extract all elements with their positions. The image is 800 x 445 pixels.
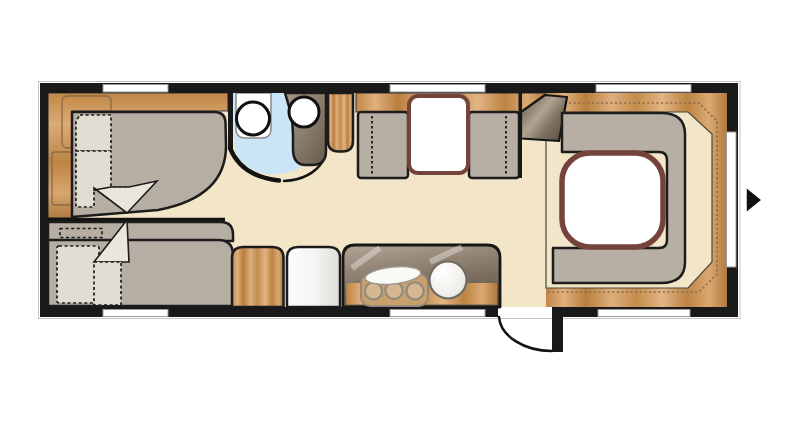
door-jamb — [552, 307, 563, 352]
window-bottom-kitchen — [390, 310, 485, 317]
lounge-table — [562, 153, 663, 247]
toilet-bowl — [289, 97, 319, 127]
bunk-lower-pillow — [57, 246, 99, 303]
window-right-end — [727, 132, 737, 267]
bunk-duvet — [94, 262, 121, 305]
washbasin — [237, 102, 270, 135]
rear-lounge — [521, 93, 727, 307]
washroom-partition-wall — [228, 93, 233, 150]
sink — [430, 262, 467, 299]
wall-left — [40, 83, 48, 317]
window-top-dinette — [390, 85, 485, 93]
caravan-floor-plan-screenshot — [0, 0, 800, 445]
window-bottom-bedroom — [103, 310, 168, 317]
burner-icon — [406, 282, 423, 299]
window-bottom-lounge — [598, 310, 690, 317]
wardrobe — [232, 247, 284, 307]
kitchen — [343, 245, 500, 307]
dinette-bench-right — [469, 112, 519, 178]
single-bed-pillow — [76, 115, 111, 151]
floor-plan-canvas — [0, 0, 800, 445]
window-top-lounge — [596, 85, 691, 93]
dinette-table — [409, 96, 468, 173]
wardrobe-column — [328, 93, 353, 152]
dinette-bench-left — [358, 112, 408, 178]
bunk-bed-upper — [48, 222, 233, 241]
window-top-bedroom — [103, 85, 168, 93]
dinette — [356, 93, 546, 178]
refrigerator — [287, 247, 340, 307]
